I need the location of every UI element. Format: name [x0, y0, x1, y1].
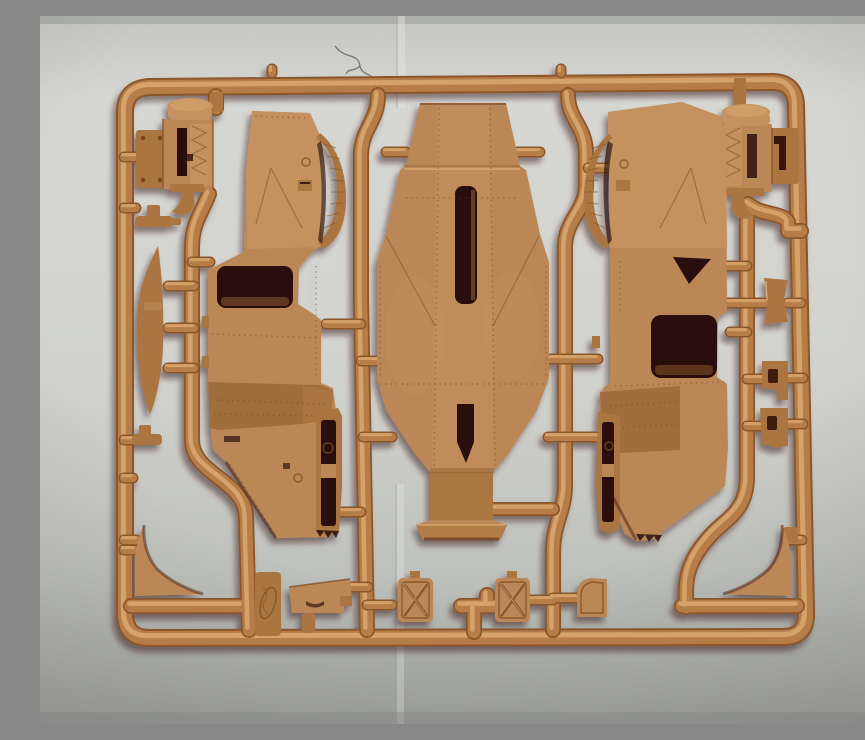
pedestal-gate-bar — [493, 507, 553, 509]
fender-ridge — [144, 302, 162, 310]
hinge-stub — [202, 316, 209, 328]
embossed-tab — [255, 572, 281, 636]
hood-facet-right — [608, 102, 727, 248]
hinge-stub — [202, 356, 209, 368]
hole-bracket-2 — [760, 408, 788, 448]
door-frame-right — [596, 412, 620, 534]
curved-hatch — [577, 578, 607, 617]
hinge-stub — [592, 336, 600, 348]
door-teeth-right — [636, 534, 662, 542]
photo-of-model-sprue: Tan injection-molded plastic model-kit s… — [40, 16, 865, 724]
vent-slot — [224, 436, 240, 442]
hatch-door-x-2 — [495, 571, 530, 622]
pedestal — [430, 472, 493, 520]
engine-slot — [177, 128, 187, 176]
door-frame-left — [316, 408, 342, 538]
hatch-door-x-1 — [398, 571, 433, 622]
sprue-photo-canvas — [40, 16, 865, 724]
